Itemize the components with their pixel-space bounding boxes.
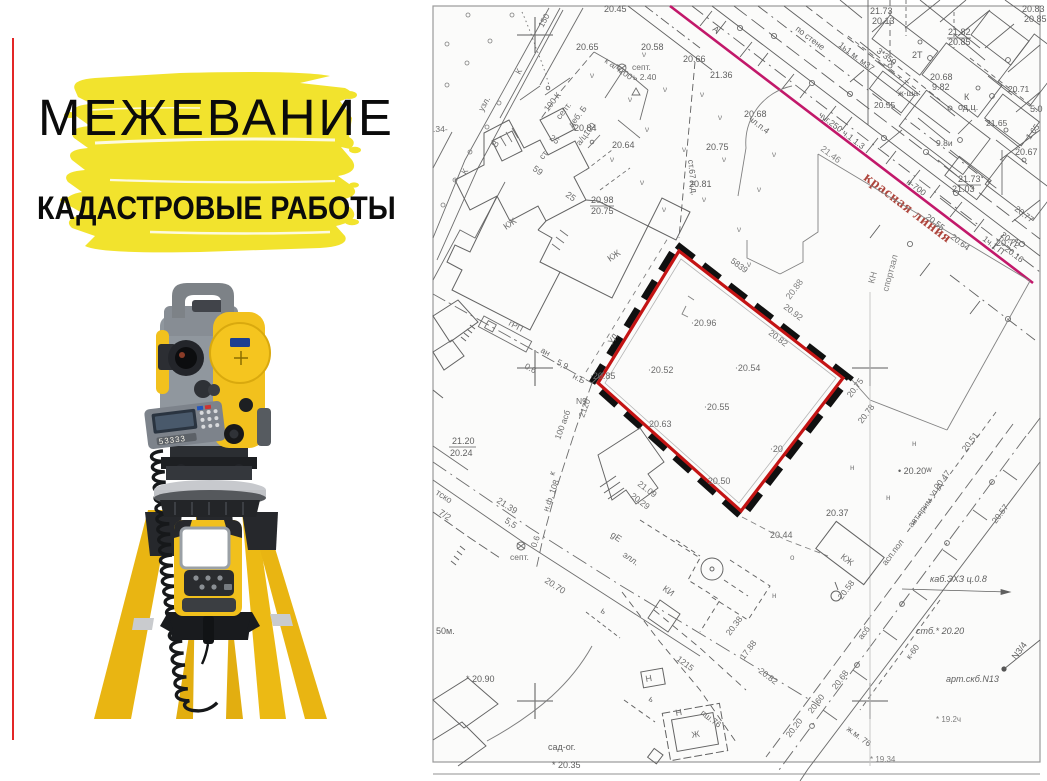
svg-text:.34-: .34- bbox=[433, 124, 448, 134]
svg-text:ν: ν bbox=[757, 185, 761, 194]
svg-text:ν: ν bbox=[645, 125, 649, 134]
svg-text:⋅20.55: ⋅20.55 bbox=[704, 402, 729, 412]
svg-text:каб.ЭХЗ ц.0.8: каб.ЭХЗ ц.0.8 bbox=[930, 574, 987, 584]
svg-text:н: н bbox=[850, 463, 854, 472]
svg-text:ν: ν bbox=[772, 150, 776, 159]
svg-text:ж-ша: ж-ша bbox=[898, 88, 918, 98]
svg-text:20.64: 20.64 bbox=[612, 140, 635, 150]
svg-text:21.73: 21.73 bbox=[870, 6, 893, 16]
svg-text:50м.: 50м. bbox=[436, 626, 455, 636]
svg-text:⋅20.52: ⋅20.52 bbox=[648, 365, 673, 375]
svg-text:⋅20: ⋅20 bbox=[770, 444, 783, 454]
svg-text:н: н bbox=[912, 439, 916, 448]
svg-text:ь 2.40: ь 2.40 bbox=[633, 72, 657, 82]
svg-text:20.24: 20.24 bbox=[450, 448, 473, 458]
svg-text:н: н bbox=[772, 591, 776, 600]
svg-text:септ.: септ. bbox=[510, 552, 529, 562]
svg-text:21.65: 21.65 bbox=[986, 118, 1008, 128]
svg-text:20.13: 20.13 bbox=[872, 16, 895, 26]
svg-text:септ.: септ. bbox=[632, 62, 651, 72]
svg-text:ν: ν bbox=[718, 113, 722, 122]
svg-text:⋅20.96: ⋅20.96 bbox=[691, 318, 716, 328]
svg-text:20.68: 20.68 bbox=[930, 72, 953, 82]
svg-text:о: о bbox=[790, 553, 795, 562]
svg-text:21.36: 21.36 bbox=[710, 70, 733, 80]
svg-text:ν: ν bbox=[662, 205, 666, 214]
svg-text:9.8и: 9.8и bbox=[936, 138, 953, 148]
svg-text:20.75: 20.75 bbox=[706, 142, 729, 152]
svg-text:К: К bbox=[964, 92, 970, 102]
svg-text:ν: ν bbox=[722, 155, 726, 164]
svg-text:20.55: 20.55 bbox=[874, 100, 896, 110]
svg-text:20.84: 20.84 bbox=[574, 123, 597, 133]
svg-text:20.44: 20.44 bbox=[770, 530, 793, 540]
svg-text:⋅20.54: ⋅20.54 bbox=[735, 363, 760, 373]
svg-text:21.03: 21.03 bbox=[952, 184, 975, 194]
svg-text:20.58: 20.58 bbox=[641, 42, 664, 52]
svg-text:* 20.35: * 20.35 bbox=[552, 760, 581, 770]
svg-text:⋅20.50: ⋅20.50 bbox=[705, 476, 730, 486]
svg-text:20.77: 20.77 bbox=[996, 238, 1019, 248]
svg-text:2Т: 2Т bbox=[912, 50, 923, 60]
svg-text:арт.скб.N13: арт.скб.N13 bbox=[946, 674, 999, 684]
svg-text:сад-ог.: сад-ог. bbox=[548, 742, 575, 752]
svg-text:* 20.90: * 20.90 bbox=[466, 674, 495, 684]
svg-text:од.ц.: од.ц. bbox=[958, 102, 978, 112]
svg-text:ν: ν bbox=[682, 145, 686, 154]
svg-text:ν: ν bbox=[640, 178, 644, 187]
svg-text:⋅20.85: ⋅20.85 bbox=[590, 371, 615, 381]
svg-text:ν: ν bbox=[590, 71, 594, 80]
svg-text:9.82: 9.82 bbox=[932, 82, 950, 92]
svg-text:стб.* 20.20: стб.* 20.20 bbox=[916, 626, 964, 636]
svg-text:* 19.34: * 19.34 bbox=[870, 755, 896, 764]
svg-text:ν: ν bbox=[700, 90, 704, 99]
svg-text:20.63: 20.63 bbox=[649, 419, 672, 429]
svg-text:н: н bbox=[886, 493, 890, 502]
svg-text:ν: ν bbox=[628, 95, 632, 104]
svg-text:ν: ν bbox=[610, 155, 614, 164]
svg-text:ν: ν bbox=[663, 85, 667, 94]
svg-text:ν: ν bbox=[702, 195, 706, 204]
svg-text:20.37: 20.37 bbox=[826, 508, 849, 518]
svg-text:20.67: 20.67 bbox=[1015, 147, 1038, 157]
svg-text:20.83: 20.83 bbox=[1022, 4, 1045, 14]
svg-text:20.85: 20.85 bbox=[1024, 14, 1047, 24]
svg-text:20.71: 20.71 bbox=[1008, 84, 1030, 94]
svg-text:* 19.2ч: * 19.2ч bbox=[936, 715, 961, 724]
svg-text:21.20: 21.20 bbox=[452, 436, 475, 446]
svg-text:20.65: 20.65 bbox=[576, 42, 599, 52]
svg-text:• 20.20ᵂ: • 20.20ᵂ bbox=[898, 466, 932, 476]
svg-text:20.45: 20.45 bbox=[604, 4, 627, 14]
svg-text:ν: ν bbox=[737, 225, 741, 234]
